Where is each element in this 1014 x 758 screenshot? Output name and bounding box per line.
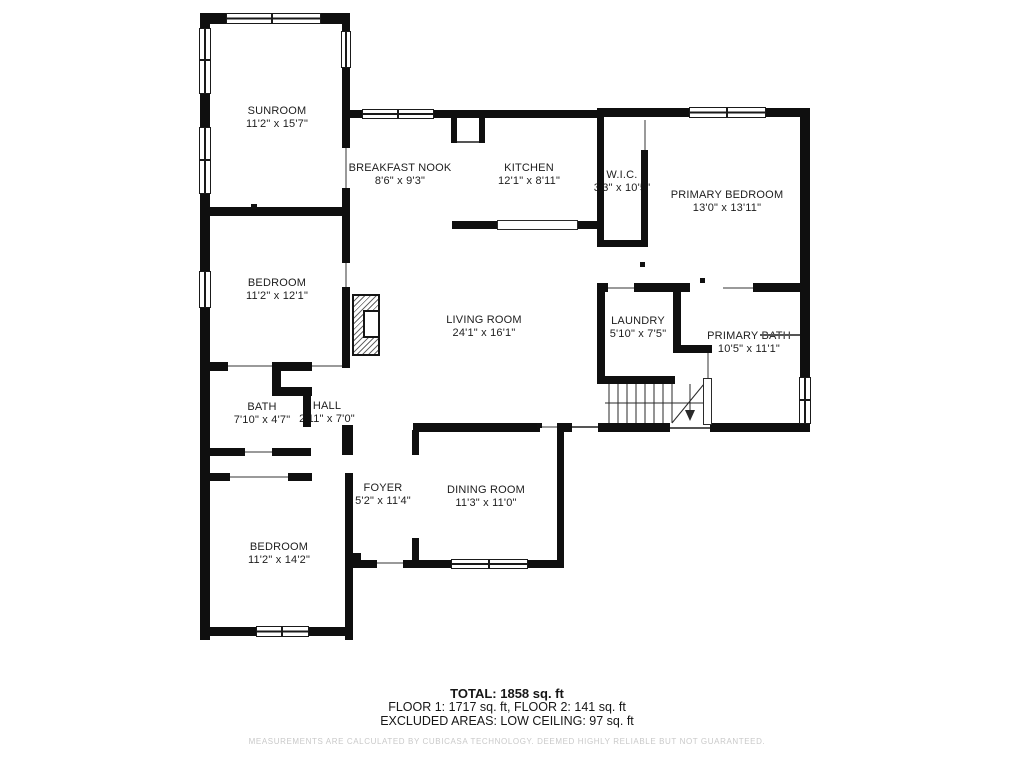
window	[199, 28, 211, 94]
wall-thin	[670, 427, 710, 429]
window-mullion	[271, 13, 273, 24]
room-label-kitchen: KITCHEN 12'1" x 8'11"	[498, 162, 560, 188]
wall	[527, 560, 564, 568]
window-mullion	[726, 107, 728, 118]
wall	[203, 362, 228, 371]
door-line	[644, 120, 646, 150]
wall	[710, 423, 810, 432]
door-line	[540, 426, 557, 428]
window	[199, 271, 211, 308]
window-mullion	[397, 109, 399, 119]
wall	[634, 283, 690, 292]
wall	[598, 423, 670, 432]
footer: TOTAL: 1858 sq. ft FLOOR 1: 1717 sq. ft,…	[0, 687, 1014, 746]
disclaimer: MEASUREMENTS ARE CALCULATED BY CUBICASA …	[0, 737, 1014, 746]
door-line	[377, 562, 403, 564]
room-label-breakfast-nook: BREAKFAST NOOK 8'6" x 9'3"	[349, 162, 452, 188]
room-label-laundry: LAUNDRY 5'10" x 7'5"	[610, 315, 667, 341]
door-line	[312, 365, 342, 367]
wall	[597, 110, 604, 247]
floor-areas: FLOOR 1: 1717 sq. ft, FLOOR 2: 141 sq. f…	[0, 701, 1014, 715]
wall	[673, 291, 681, 351]
room-label-foyer: FOYER 5'2" x 11'4"	[355, 482, 411, 508]
door-line	[608, 287, 634, 289]
door-tick	[537, 423, 542, 428]
wall	[200, 13, 210, 640]
kitchen-counter	[497, 220, 578, 230]
wall	[597, 283, 605, 380]
room-dims: 5'2" x 11'4"	[355, 495, 411, 508]
door-line	[228, 365, 272, 367]
wall	[303, 387, 311, 427]
room-name: FOYER	[355, 482, 411, 495]
wall	[403, 560, 452, 568]
window	[226, 13, 321, 24]
fireplace-inner	[363, 310, 380, 338]
excluded-areas: EXCLUDED AREAS: LOW CEILING: 97 sq. ft	[0, 715, 1014, 729]
room-name: DINING ROOM	[447, 484, 525, 497]
room-label-dining-room: DINING ROOM 11'3" x 11'0"	[447, 484, 525, 510]
floor-plan-canvas: SUNROOM 11'2" x 15'7" BREAKFAST NOOK 8'6…	[0, 0, 1014, 758]
room-label-primary-bedroom: PRIMARY BEDROOM 13'0" x 13'11"	[671, 189, 784, 215]
window-mullion	[199, 59, 211, 61]
room-name: KITCHEN	[498, 162, 560, 175]
window-mullion	[281, 626, 283, 637]
room-name: PRIMARY BATH	[707, 330, 791, 343]
wall	[272, 448, 311, 456]
fireplace	[352, 294, 380, 356]
wall-thin	[572, 426, 598, 428]
door-line	[230, 476, 288, 478]
room-name: BEDROOM	[246, 277, 308, 290]
window-mullion	[799, 399, 811, 401]
wall	[203, 473, 230, 481]
room-name: LIVING ROOM	[446, 314, 522, 327]
room-name: SUNROOM	[246, 105, 308, 118]
room-dims: 7'10" x 4'7"	[234, 414, 291, 427]
door-line	[345, 148, 347, 188]
total-area: TOTAL: 1858 sq. ft	[0, 687, 1014, 701]
wall	[202, 207, 350, 216]
wall	[452, 221, 498, 229]
window	[341, 31, 351, 68]
room-dims: 11'2" x 14'2"	[248, 554, 310, 567]
window-mullion	[488, 559, 490, 569]
wall	[413, 423, 540, 432]
wall	[345, 560, 377, 568]
room-dims: 12'1" x 8'11"	[498, 175, 560, 188]
room-label-sunroom: SUNROOM 11'2" x 15'7"	[246, 105, 308, 131]
wall	[203, 448, 245, 456]
door-line	[345, 263, 347, 287]
stair-down-arrow	[685, 410, 695, 421]
door-line	[723, 287, 753, 289]
room-dims: 10'5" x 11'1"	[707, 343, 791, 356]
room-label-living-room: LIVING ROOM 24'1" x 16'1"	[446, 314, 522, 340]
wall	[342, 207, 350, 263]
wall	[451, 118, 457, 143]
room-label-bedroom-middle: BEDROOM 11'2" x 12'1"	[246, 277, 308, 303]
room-name: LAUNDRY	[610, 315, 667, 328]
stair-rail	[703, 378, 712, 425]
wall	[412, 430, 419, 455]
wall	[342, 287, 350, 368]
wall	[641, 150, 648, 247]
room-name: PRIMARY BEDROOM	[671, 189, 784, 202]
room-dims: 5'10" x 7'5"	[610, 328, 667, 341]
wall	[597, 376, 675, 384]
room-dims: 8'6" x 9'3"	[349, 175, 452, 188]
door-line	[245, 451, 272, 453]
door-tick	[640, 262, 645, 267]
wall	[557, 423, 564, 567]
room-label-bedroom-bottom: BEDROOM 11'2" x 14'2"	[248, 541, 310, 567]
room-dims: 11'2" x 15'7"	[246, 118, 308, 131]
wall	[342, 425, 353, 455]
room-label-bath: BATH 7'10" x 4'7"	[234, 401, 291, 427]
room-dims: 13'0" x 13'11"	[671, 202, 784, 215]
room-dims: 24'1" x 16'1"	[446, 327, 522, 340]
door-tick	[251, 204, 257, 209]
room-dims: 11'2" x 12'1"	[246, 290, 308, 303]
door-tick	[700, 278, 705, 283]
wall	[673, 345, 712, 353]
door-line	[707, 353, 709, 378]
wall	[345, 473, 353, 567]
wall	[479, 118, 485, 143]
room-dims: 11'3" x 11'0"	[447, 497, 525, 510]
room-name: BATH	[234, 401, 291, 414]
window-mullion	[199, 159, 211, 161]
room-name: BEDROOM	[248, 541, 310, 554]
wall	[288, 473, 312, 481]
room-name: BREAKFAST NOOK	[349, 162, 452, 175]
